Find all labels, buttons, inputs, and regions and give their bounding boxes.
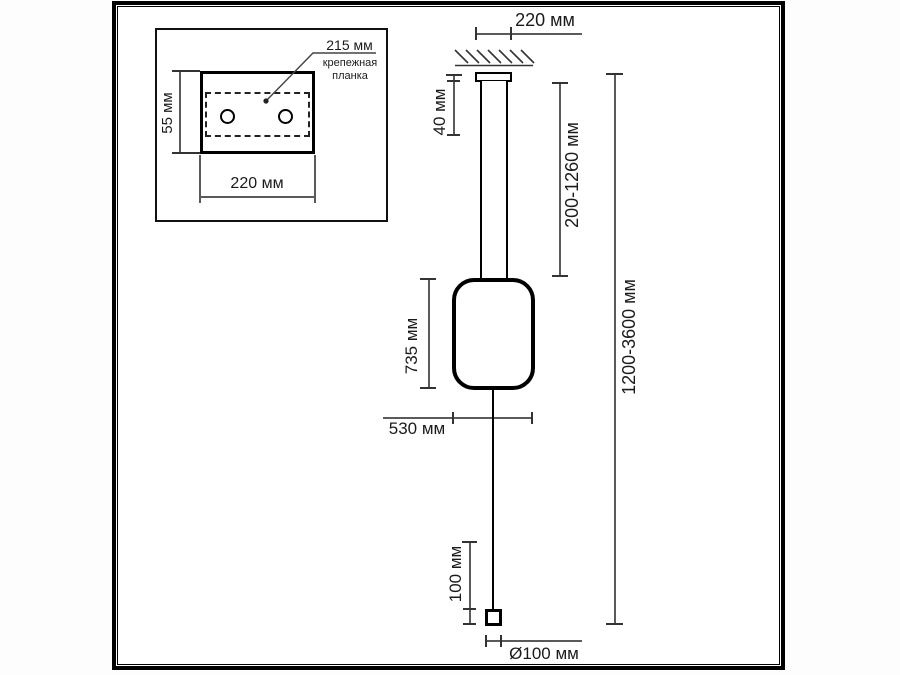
dim-plate-height-line: [179, 71, 181, 154]
dim-body-height-label: 735 мм: [403, 306, 421, 386]
mounting-plate-inset: 215 мм крепежная планка 55 мм 220 мм: [155, 28, 388, 222]
dim-plate-width-line: [200, 196, 315, 198]
end-cap: [485, 609, 502, 626]
dim-canopy-height-line: [453, 75, 455, 136]
dim-overall-height-line: [614, 74, 616, 625]
dim-canopy-width-line: [476, 33, 582, 35]
dim-body-height-line: [428, 279, 430, 389]
dim-plate-width-label: 220 мм: [217, 176, 297, 193]
lower-cable: [492, 390, 494, 609]
dim-cap-diameter-tick-left: [485, 635, 487, 647]
dim-rod-range-label: 200-1260 мм: [563, 115, 583, 235]
dim-rod-range-line: [559, 83, 561, 277]
dim-body-height-tick-top: [420, 278, 436, 280]
dim-body-width-label: 530 мм: [378, 420, 456, 438]
dim-cap-height-tick-bottom: [463, 623, 476, 625]
dim-plate-height-label: 55 мм: [160, 82, 176, 144]
dim-canopy-width-tick-left: [475, 27, 477, 40]
dim-cap-diameter-label: Ø100 мм: [498, 645, 590, 663]
dim-canopy-height-label: 40 мм: [431, 77, 449, 147]
lamp-body-outline: [452, 278, 535, 390]
bracket-width-label: 215 мм: [312, 38, 387, 53]
dim-cap-height-label: 100 мм: [447, 534, 465, 614]
suspension-tube: [480, 81, 508, 278]
dim-plate-height-tick-bottom: [172, 152, 200, 154]
dim-plate-height-tick-top: [172, 70, 200, 72]
dim-canopy-width-label: 220 мм: [503, 11, 587, 30]
dim-cap-height-line: [469, 542, 471, 625]
ceiling-hatching-icon: [450, 48, 545, 68]
dim-overall-height-tick-bottom: [606, 623, 623, 625]
dim-body-width-tick-right: [531, 412, 533, 424]
dim-overall-height-tick-top: [606, 73, 623, 75]
dim-rod-range-tick-bottom: [552, 275, 568, 277]
technical-drawing-page: 215 мм крепежная планка 55 мм 220 мм 220…: [0, 0, 900, 675]
dim-body-height-tick-bottom: [420, 387, 436, 389]
bracket-caption: крепежная планка: [314, 57, 386, 82]
dim-canopy-height-tick-top: [446, 74, 462, 76]
dim-overall-height-label: 1200-3600 мм: [620, 267, 640, 407]
dim-rod-range-tick-top: [552, 82, 568, 84]
